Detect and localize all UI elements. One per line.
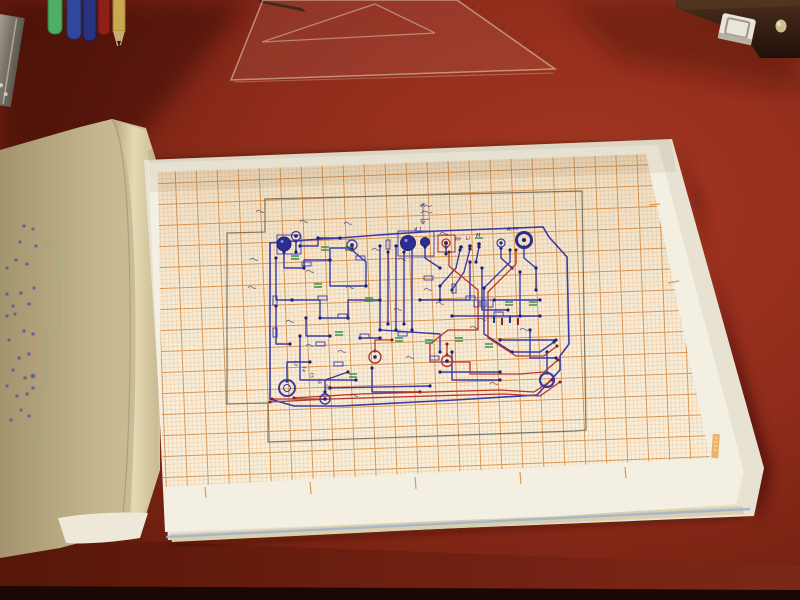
terminal-label-m: M (476, 233, 481, 239)
solder-dot (498, 378, 501, 381)
pin-number: 14 (300, 366, 307, 373)
pin-number: 16 (316, 378, 323, 385)
grid-shading (158, 154, 710, 487)
marker-red (98, 0, 110, 35)
solder-dot (316, 236, 319, 239)
pin-number: 15 (308, 372, 315, 379)
solder-dot (428, 384, 431, 387)
solder-dot (480, 266, 483, 269)
solder-dot (354, 378, 357, 381)
solder-dot (477, 245, 480, 248)
solder-dot (448, 251, 451, 254)
potentiometer (277, 237, 291, 251)
solder-dot (271, 398, 274, 401)
solder-dot (450, 350, 453, 353)
pencil-body (113, 0, 125, 31)
solder-dot (410, 328, 413, 331)
solder-dot (458, 248, 461, 251)
solder-dot (328, 334, 331, 337)
marker-blue-2 (83, 0, 96, 41)
solder-dot (323, 390, 326, 393)
solder-dot (534, 288, 537, 291)
solder-dot (518, 314, 521, 317)
marker-blue-1 (67, 0, 81, 39)
solder-dot (438, 266, 441, 269)
solder-dot (288, 342, 291, 345)
solder-dot (518, 270, 521, 273)
stapler-button (776, 20, 787, 33)
solder-dot (302, 266, 305, 269)
solder-dot (346, 370, 349, 373)
solder-dot (402, 250, 405, 253)
solder-dot (559, 381, 562, 384)
notebook-turned-pages (0, 119, 160, 558)
solder-dot (482, 286, 485, 289)
solder-dot (318, 316, 321, 319)
solder-dot (538, 314, 541, 317)
solder-dot (418, 298, 421, 301)
potentiometer (401, 236, 416, 251)
solder-dot (515, 249, 518, 252)
terminal-pin (459, 245, 463, 249)
terminal-label-re: Re (454, 236, 462, 243)
solder-dot (538, 298, 541, 301)
solder-dot (402, 322, 405, 325)
marker-green (48, 0, 62, 34)
white-page-curl (58, 513, 148, 544)
solder-dot (468, 260, 471, 263)
solder-dot (338, 236, 341, 239)
solder-dot (394, 244, 397, 247)
solder-dot (370, 366, 373, 369)
solder-dot (298, 334, 301, 337)
graph-paper (158, 154, 720, 498)
pot-highlight (404, 239, 407, 242)
pot-value-label: 4.1 (414, 227, 422, 233)
solder-dot (386, 322, 389, 325)
solder-dot (438, 370, 441, 373)
solder-dot (293, 397, 296, 400)
solder-dot (391, 339, 394, 342)
solder-dot (528, 328, 531, 331)
solder-dot (294, 250, 297, 253)
solder-dot (438, 350, 441, 353)
solder-dot (556, 345, 559, 348)
solder-dot (474, 260, 477, 263)
solder-dot (450, 314, 453, 317)
terminal-pin (468, 244, 472, 248)
terminal-pin (477, 242, 481, 246)
solder-dot (506, 308, 509, 311)
solder-dot (378, 328, 381, 331)
solder-dot (364, 284, 367, 287)
solder-dot (534, 266, 537, 269)
solder-dot (446, 343, 449, 346)
solder-dot (552, 340, 555, 343)
stapler-button-highlight (777, 22, 781, 27)
pin-number: 20 (324, 384, 331, 391)
solder-dot (304, 316, 307, 319)
solder-dot (444, 252, 447, 255)
desk-photo: 4.1 Re Li M Accu 13 14 15 16 20 (0, 0, 800, 600)
solder-dot (498, 338, 501, 341)
solder-dot (394, 328, 397, 331)
solder-dot (290, 298, 293, 301)
solder-dot (378, 336, 381, 339)
solder-dot (438, 298, 441, 301)
solder-dot (508, 248, 511, 251)
pot-highlight (281, 240, 284, 243)
solder-dot (328, 258, 331, 261)
solder-dot (269, 401, 272, 404)
solder-dot (378, 244, 381, 247)
solder-dot (308, 360, 311, 363)
solder-dot (557, 359, 560, 362)
pin-number: 13 (292, 360, 299, 367)
solder-dot (378, 298, 381, 301)
solder-dot (298, 244, 301, 247)
solder-dot (274, 256, 277, 259)
solder-dot (438, 284, 441, 287)
solder-dot (386, 250, 389, 253)
solder-dot (468, 247, 471, 250)
trimmer-filled (421, 238, 430, 247)
solder-dot (498, 370, 501, 373)
